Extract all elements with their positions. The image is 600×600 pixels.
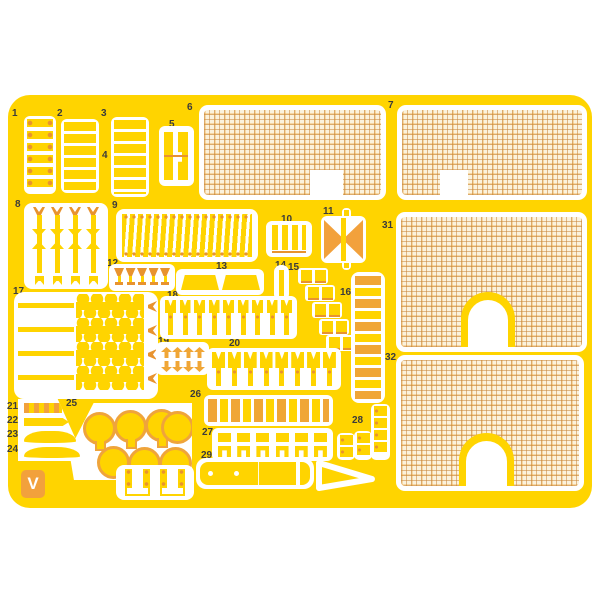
part-6-notch [310,170,343,195]
part-1-rivets-left [27,119,33,191]
part-20-panel [207,348,341,390]
part-20-fork [307,352,320,386]
part-13-panel [176,269,264,295]
part-18-fork [252,300,263,335]
part-27-tabs-bottom [218,446,327,457]
part-18-fork [281,300,292,335]
part-18-fork [267,300,278,335]
part-29-body [200,462,310,485]
part-11-bow-left [324,220,341,259]
part-10-panel [266,221,312,257]
part-33-panel [116,465,194,500]
part-16-ladder [351,272,385,403]
part-8-dart [85,207,101,285]
part-17-panel [14,292,158,399]
part-19-spade [194,361,205,372]
part-label-31: 31 [382,221,393,231]
part-31-mesh-panel [396,212,587,352]
part-21-striped-strip [24,403,62,413]
part-31-arch-rim [461,292,515,347]
brand-badge: V [21,470,45,498]
part-19-spade [172,361,183,372]
part-7-mesh [402,110,582,195]
part-29-hole [234,471,239,476]
part-8-dart [67,207,83,285]
part-label-8: 8 [15,200,21,210]
part-29-barrel [196,458,314,489]
part-25-wheel [114,410,147,443]
part-17-axle [14,318,158,342]
part-27-tab [237,433,250,442]
part-24-curved-strip [24,447,80,458]
part-12-goblet [149,268,159,287]
part-27-tab [276,433,289,442]
part-18-fork [209,300,220,335]
part-label-9: 9 [112,201,118,211]
part-12-goblet [114,268,124,287]
part-25-wheel [83,412,116,445]
part-5-scribe-line [164,155,188,157]
part-22-pointed-strip [24,418,69,426]
part-27-tab-notched [237,446,250,457]
part-9-panel [116,209,258,262]
part-29-hole [208,471,213,476]
part-19-spade [161,361,172,372]
part-18-fork [238,300,249,335]
part-19-spade [194,347,205,358]
part-label-23: 23 [7,430,18,440]
part-12-goblet [126,268,136,287]
part-33-bracket [124,469,151,496]
part-20-fork [244,352,257,386]
part-6-mesh-panel [199,105,386,200]
part-15-chip [319,319,349,335]
part-8-darts [30,207,102,285]
part-25-wheel [161,411,194,444]
part-label-32: 32 [385,353,396,363]
part-11-bow-right [346,220,363,259]
part-32-arch-rim [459,433,514,486]
part-27-tab-notched [276,446,289,457]
part-label-1: 1 [12,109,18,119]
part-17-axle [14,294,158,318]
part-7-notch [440,170,468,195]
part-20-fork [323,352,336,386]
part-20-fork [228,352,241,386]
part-27-tab [295,433,308,442]
part-8-dart [31,207,47,285]
part-28-stack [371,404,390,460]
part-20-fork [260,352,273,386]
part-29-gap [296,462,300,485]
part-33-brackets [124,469,186,496]
part-18-fork [194,300,205,335]
part-10-rail [272,251,306,253]
part-12-goblet [137,268,147,287]
part-12-panel [109,264,175,291]
part-label-16: 16 [340,288,351,298]
part-18-panel [160,296,297,339]
part-20-forks [212,352,336,386]
part-30-wedge [314,456,378,493]
part-27-tab [256,433,269,442]
part-13-fender [181,275,219,290]
part-20-fork [275,352,288,386]
part-18-fork [180,300,191,335]
part-12-goblet [160,268,170,287]
part-32-mesh-panel [396,355,584,491]
part-14-pin [279,270,284,296]
part-label-3: 3 [101,109,107,119]
part-26-ladder [204,395,333,426]
fret-sheet: 1 2 3 4 5 6 7 8 9 10 11 12 13 14 15 16 1… [8,95,592,508]
part-27-tab-notched [256,446,269,457]
part-19-spade [161,347,172,358]
part-15-chip [298,268,328,284]
part-7-mesh-panel [397,105,587,200]
part-5-bracket [159,126,194,186]
part-28-cluster [337,404,390,460]
part-20-fork [291,352,304,386]
part-31-mesh [401,217,582,347]
part-label-4: 4 [102,151,108,161]
part-9-strips [122,214,252,257]
part-10-posts [272,225,306,250]
part-3-4-spring-ladder [111,117,149,197]
part-15-chip [305,285,335,301]
part-27-tab-notched [295,446,308,457]
page: 1 2 3 4 5 6 7 8 9 10 11 12 13 14 15 16 1… [0,0,600,600]
part-18-fork [223,300,234,335]
part-17-axle [14,366,158,390]
part-18-fork [165,300,176,335]
part-27-tab [218,433,231,442]
part-29-seam [258,462,259,485]
part-19-spades [161,347,204,370]
part-20-fork [212,352,225,386]
part-16-rungs [355,276,381,399]
part-label-6: 6 [187,103,193,113]
part-27-tabs-top [218,433,327,442]
part-2-rungs [64,122,96,190]
part-label-25: 25 [66,399,77,409]
part-18-forks [165,300,292,335]
part-27-tab-notched [218,446,231,457]
part-8-dart [49,207,65,285]
part-32-mesh [401,360,579,486]
part-label-7: 7 [388,101,394,111]
part-label-21: 21 [7,402,18,412]
part-19-panel [156,342,209,375]
part-32-arch-hole [466,441,507,486]
part-19-spade [183,361,194,372]
part-17-axle [14,342,158,366]
part-15-chip [312,302,342,318]
part-2-spring-ladder [61,119,99,193]
part-19-spade [183,347,194,358]
part-6-mesh [204,110,381,195]
part-label-26: 26 [190,390,201,400]
part-11-stem-center [341,218,346,261]
part-label-24: 24 [7,445,18,455]
part-12-goblets [114,268,170,287]
part-31-arch-hole [468,300,508,347]
part-3-4-rungs [114,120,146,194]
part-label-2: 2 [57,109,63,119]
part-26-rungs [208,399,329,422]
part-1-spring-ladder [24,116,56,194]
part-1-rivets-right [47,119,53,191]
part-23-curved-strip [24,431,76,443]
part-label-22: 22 [7,416,18,426]
part-27-tab [314,433,327,442]
part-8-panel [24,203,108,289]
part-33-bracket [159,469,186,496]
part-13-fender [222,275,260,290]
part-11-panel [321,216,366,263]
part-19-spade [172,347,183,358]
